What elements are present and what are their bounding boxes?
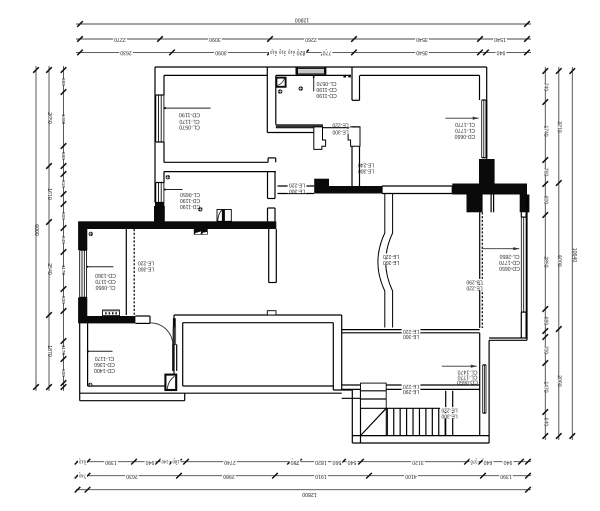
svg-text:CD-1190: CD-1190 [316, 92, 337, 98]
svg-text:CD-1360: CD-1360 [94, 361, 115, 367]
svg-text:3540: 3540 [416, 49, 428, 55]
svg-text:310: 310 [278, 50, 286, 55]
svg-text:700: 700 [542, 346, 548, 355]
svg-text:LE-290: LE-290 [403, 388, 419, 394]
svg-text:680: 680 [542, 317, 548, 326]
svg-text:3120: 3120 [412, 459, 424, 465]
svg-text:LE-220: LE-220 [441, 407, 457, 413]
svg-text:1170: 1170 [61, 345, 66, 355]
svg-text:370: 370 [470, 459, 478, 464]
svg-text:1820: 1820 [315, 459, 327, 465]
svg-text:12800: 12800 [302, 491, 317, 497]
svg-text:6000: 6000 [33, 224, 39, 236]
svg-text:600: 600 [61, 369, 66, 377]
svg-text:940: 940 [504, 459, 513, 465]
svg-text:1910: 1910 [315, 473, 327, 479]
svg-text:560: 560 [333, 459, 342, 465]
svg-text:4100: 4100 [405, 473, 417, 479]
svg-text:2270: 2270 [114, 36, 126, 42]
svg-text:940: 940 [497, 49, 506, 55]
svg-text:LE-300: LE-300 [441, 413, 457, 419]
svg-text:610: 610 [287, 50, 295, 55]
svg-text:1470: 1470 [542, 381, 548, 392]
svg-text:CD-1190: CD-1190 [180, 203, 201, 209]
svg-text:LE-240: LE-240 [358, 161, 374, 167]
svg-text:LB-290: LB-290 [466, 278, 482, 284]
svg-text:CD-1400: CD-1400 [94, 367, 115, 373]
svg-text:740: 740 [78, 473, 86, 478]
svg-text:CD-0650: CD-0650 [457, 379, 478, 385]
svg-text:2980: 2980 [223, 473, 235, 479]
svg-text:3540: 3540 [416, 36, 428, 42]
svg-text:940: 940 [146, 459, 155, 465]
svg-text:3090: 3090 [215, 49, 227, 55]
svg-text:600: 600 [61, 212, 66, 220]
svg-text:LE-220: LE-220 [332, 121, 348, 127]
svg-text:LE-300: LE-300 [358, 167, 374, 173]
svg-text:LE-220: LE-220 [289, 182, 305, 188]
svg-text:CD-0650: CD-0650 [454, 133, 475, 139]
svg-text:760: 760 [542, 168, 548, 177]
svg-text:10640: 10640 [571, 248, 577, 263]
svg-text:600: 600 [542, 196, 548, 205]
svg-text:180: 180 [172, 459, 180, 464]
svg-text:CL-1170: CL-1170 [95, 355, 115, 361]
svg-text:LE-300: LE-300 [403, 333, 419, 339]
svg-text:1390: 1390 [500, 473, 512, 479]
svg-text:CL-2850: CL-2850 [499, 253, 519, 259]
svg-text:560: 560 [61, 152, 66, 160]
svg-text:CL-1170: CL-1170 [179, 118, 199, 124]
svg-text:CD-1770: CD-1770 [499, 259, 520, 265]
svg-text:LE-300: LE-300 [138, 265, 154, 271]
svg-text:CL-0570: CL-0570 [179, 124, 200, 130]
svg-text:CD-1190: CD-1190 [179, 111, 200, 117]
svg-text:12800: 12800 [295, 16, 310, 22]
svg-text:CD-1190: CD-1190 [180, 197, 201, 203]
svg-text:6000: 6000 [556, 255, 562, 267]
svg-text:LE-220: LE-220 [403, 383, 419, 389]
svg-text:1170: 1170 [61, 265, 66, 275]
svg-text:LE-220: LE-220 [383, 253, 399, 259]
svg-text:520: 520 [61, 296, 66, 304]
svg-text:820: 820 [297, 49, 306, 55]
svg-text:1540: 1540 [494, 36, 506, 42]
svg-text:680: 680 [61, 78, 66, 86]
svg-text:2630: 2630 [126, 473, 138, 479]
svg-text:CL-0950: CL-0950 [95, 284, 115, 290]
svg-text:2060: 2060 [556, 375, 562, 387]
svg-text:610: 610 [269, 50, 277, 55]
svg-text:540: 540 [348, 459, 357, 465]
svg-text:CL-0570: CL-0570 [316, 80, 336, 86]
svg-text:640: 640 [542, 418, 548, 427]
svg-text:640: 640 [484, 459, 493, 465]
svg-text:280: 280 [291, 459, 300, 465]
svg-text:1870: 1870 [46, 345, 52, 357]
svg-text:610: 610 [61, 180, 66, 188]
svg-text:CD-0650: CD-0650 [499, 265, 520, 271]
svg-text:LE-300: LE-300 [332, 128, 348, 134]
svg-text:2740: 2740 [224, 459, 236, 465]
svg-text:2850: 2850 [542, 256, 548, 267]
svg-text:LE-220: LE-220 [138, 259, 154, 265]
svg-text:640: 640 [61, 236, 66, 244]
svg-text:610: 610 [78, 459, 86, 464]
svg-text:2260: 2260 [305, 36, 317, 42]
svg-text:3090: 3090 [209, 36, 221, 42]
svg-text:LE-220: LE-220 [466, 284, 482, 290]
svg-text:LE-220: LE-220 [403, 328, 419, 334]
svg-text:3210: 3210 [556, 121, 562, 133]
svg-text:CD-1360: CD-1360 [95, 272, 116, 278]
svg-text:2540: 2540 [46, 263, 52, 275]
svg-text:CL-0650: CL-0650 [180, 191, 200, 197]
svg-text:1460: 1460 [61, 114, 66, 125]
svg-text:2650: 2650 [46, 112, 52, 124]
svg-text:770: 770 [323, 49, 332, 55]
svg-text:LE-300: LE-300 [383, 259, 399, 265]
svg-text:CD-1190: CD-1190 [316, 86, 337, 92]
svg-text:LE-300: LE-300 [289, 188, 305, 194]
svg-text:1390: 1390 [105, 459, 117, 465]
svg-text:CL-1770: CL-1770 [455, 127, 475, 133]
svg-text:2630: 2630 [120, 49, 132, 55]
svg-text:CL-1770: CL-1770 [455, 121, 475, 127]
svg-text:CD-1170: CD-1170 [95, 278, 116, 284]
svg-text:1740: 1740 [542, 125, 548, 136]
svg-text:240: 240 [161, 459, 169, 464]
svg-text:740: 740 [542, 83, 548, 92]
svg-text:1610: 1610 [46, 188, 52, 200]
